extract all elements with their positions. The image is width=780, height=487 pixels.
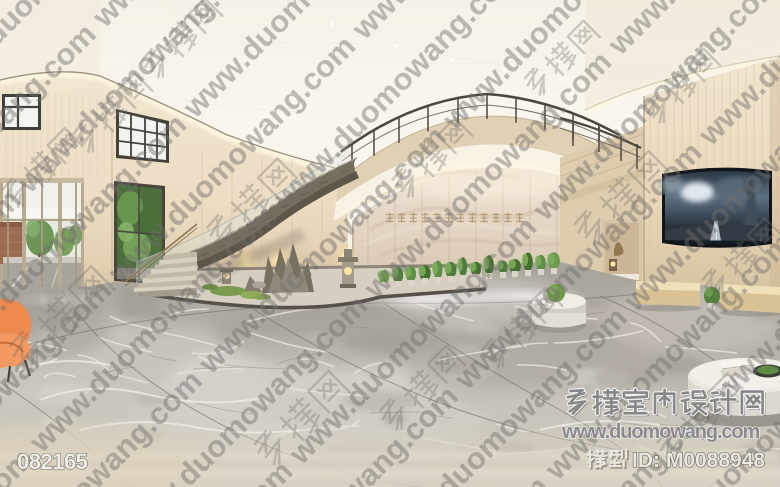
- svg-text:ID: M0088948: ID: M0088948: [632, 449, 765, 472]
- svg-text:www.duomowang.com: www.duomowang.com: [561, 421, 760, 443]
- svg-text:082165: 082165: [17, 449, 88, 474]
